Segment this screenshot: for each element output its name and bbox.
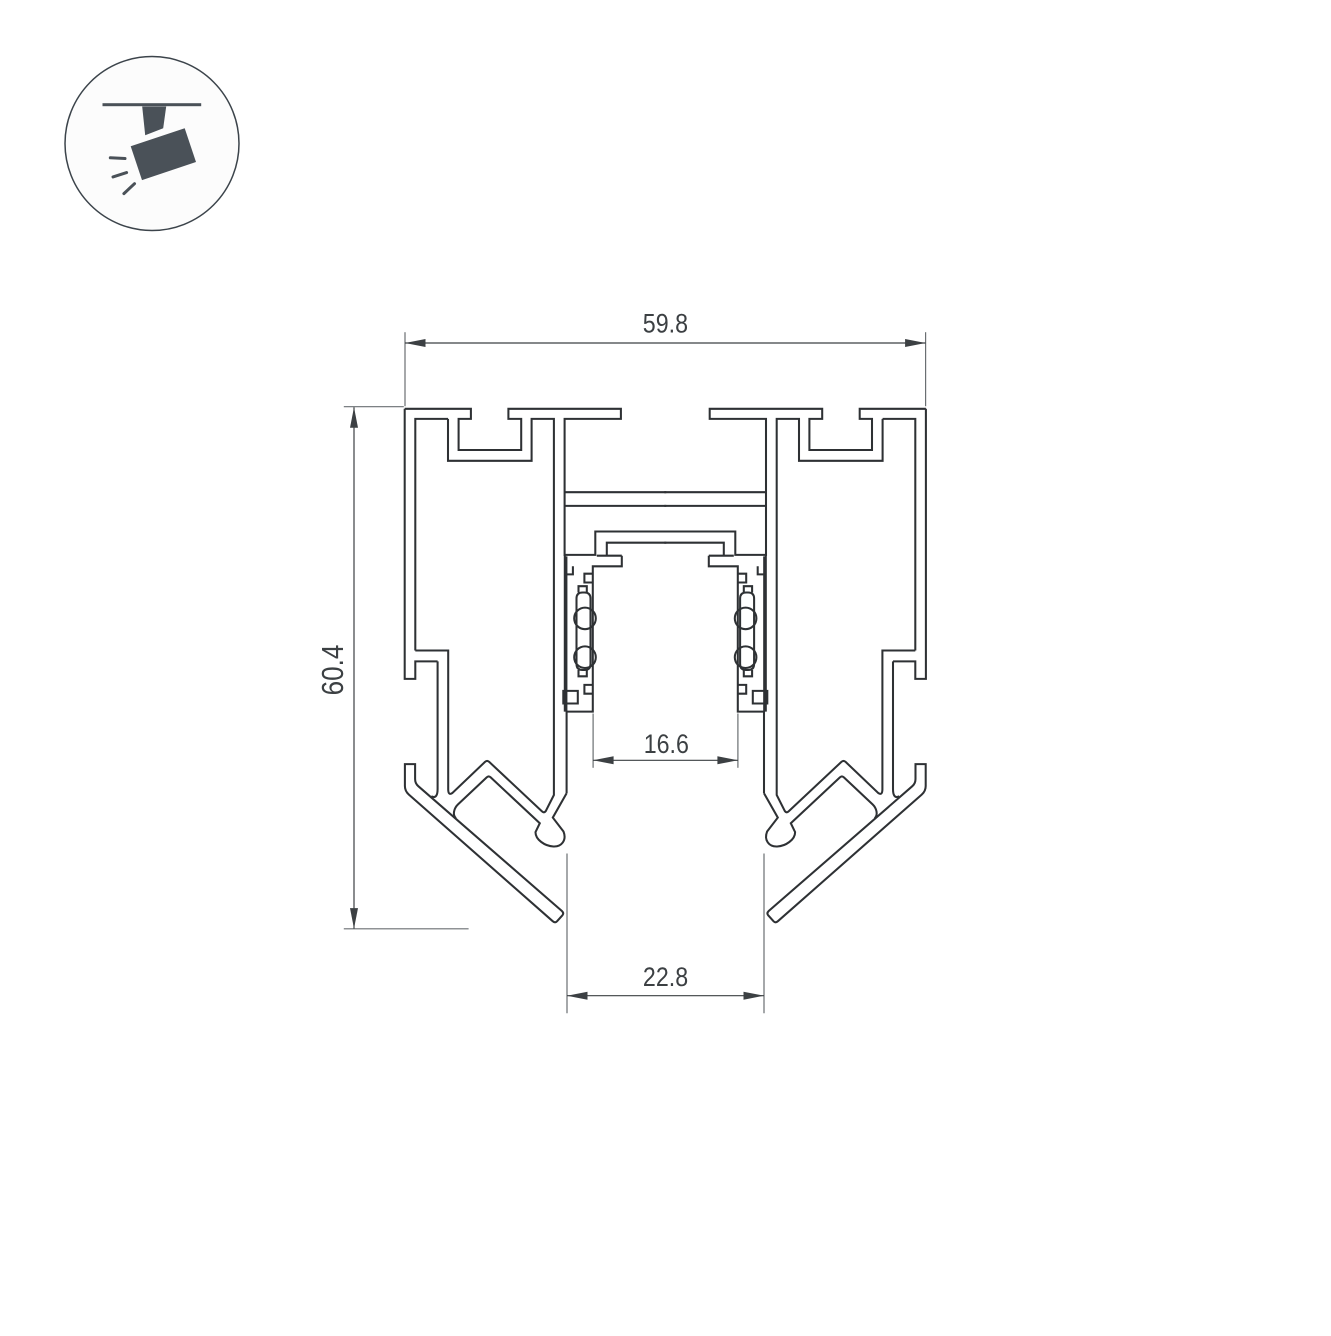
svg-text:59.8: 59.8 xyxy=(643,309,688,339)
svg-text:22.8: 22.8 xyxy=(643,963,688,993)
svg-text:16.6: 16.6 xyxy=(644,729,689,759)
svg-text:60.4: 60.4 xyxy=(316,645,351,696)
